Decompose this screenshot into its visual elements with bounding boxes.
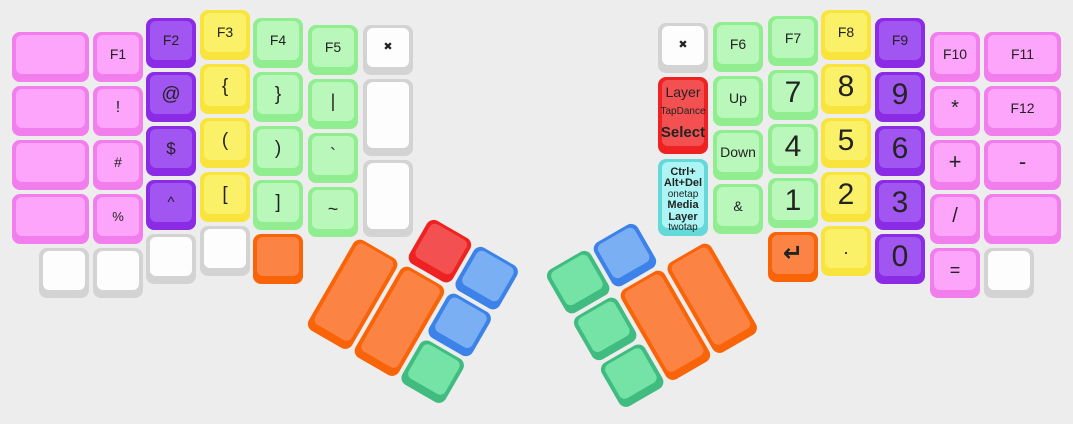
enter-icon: ↵ <box>783 242 803 267</box>
key-num-3[interactable]: 3 <box>875 180 925 230</box>
key-f10[interactable]: F10 <box>930 32 980 82</box>
keycap-face: 9 <box>879 75 921 114</box>
keycap-face: / <box>934 197 976 236</box>
keycap-face: = <box>934 251 976 290</box>
key-f5[interactable]: F5 <box>308 25 358 75</box>
key-label: + <box>949 151 962 174</box>
keycap-face: ) <box>257 129 299 168</box>
key-num-5[interactable]: 5 <box>821 118 871 168</box>
key-decimal-point[interactable]: . <box>821 226 871 276</box>
key-layer-tapdance-select[interactable]: LayerTapDanceSelect <box>658 77 708 154</box>
key-label: Up <box>729 91 747 106</box>
key-num-6[interactable]: 6 <box>875 126 925 176</box>
key-label: 7 <box>785 77 802 108</box>
key-f8[interactable]: F8 <box>821 10 871 60</box>
key-dollar[interactable]: $ <box>146 126 196 176</box>
key-blank[interactable] <box>12 194 89 244</box>
keycap-face: } <box>257 75 299 114</box>
key-blank[interactable] <box>146 234 196 284</box>
key-blank[interactable] <box>12 140 89 190</box>
key-slash[interactable]: / <box>930 194 980 244</box>
key-label-line: TapDance <box>660 107 705 117</box>
key-label: ] <box>275 193 280 213</box>
key-blank[interactable] <box>12 32 89 82</box>
key-label: & <box>733 199 742 214</box>
x-icon: ✖ <box>383 42 392 53</box>
key-num-7[interactable]: 7 <box>768 70 818 120</box>
keycap-face <box>97 251 139 290</box>
key-f4[interactable]: F4 <box>253 18 303 68</box>
key-num-8[interactable]: 8 <box>821 64 871 114</box>
keycap-face: ] <box>257 183 299 222</box>
key-f11[interactable]: F11 <box>984 32 1061 82</box>
key-f6[interactable]: F6 <box>713 22 763 72</box>
keycap-face: F4 <box>257 21 299 60</box>
key-left-paren[interactable]: ( <box>200 118 250 168</box>
key-down[interactable]: Down <box>713 130 763 180</box>
key-num-0[interactable]: 0 <box>875 234 925 284</box>
keycap-face: 7 <box>772 73 814 112</box>
key-label: # <box>114 155 122 170</box>
key-label: ! <box>116 100 120 117</box>
key-label: 5 <box>838 125 855 156</box>
key-minus[interactable]: - <box>984 140 1061 190</box>
keycap-face: F12 <box>988 89 1057 128</box>
key-left-bracket[interactable]: [ <box>200 172 250 222</box>
keycap-face: F7 <box>772 19 814 58</box>
keycap-face <box>16 89 85 128</box>
key-f12[interactable]: F12 <box>984 86 1061 136</box>
key-label: . <box>843 239 848 258</box>
keycap-face <box>603 346 659 401</box>
x-icon: ✖ <box>678 40 687 51</box>
keycap-face: LayerTapDanceSelect <box>662 80 704 146</box>
keycap-face <box>204 229 246 268</box>
key-blank[interactable] <box>253 234 303 284</box>
key-label: 2 <box>838 179 855 210</box>
keycap-face: Up <box>717 79 759 118</box>
keycap-face: & <box>717 187 759 226</box>
keycap-face <box>16 197 85 236</box>
key-right-bracket[interactable]: ] <box>253 180 303 230</box>
keycap-face: F11 <box>988 35 1057 74</box>
keycap-face <box>367 82 409 148</box>
key-num-2[interactable]: 2 <box>821 172 871 222</box>
keycap-face <box>596 226 652 281</box>
keycap-face: 4 <box>772 127 814 166</box>
key-num-9[interactable]: 9 <box>875 72 925 122</box>
key-label: ) <box>275 139 281 159</box>
keycap-face: 3 <box>879 183 921 222</box>
key-tilde[interactable]: ~ <box>308 187 358 237</box>
keycap-face: ~ <box>312 190 354 229</box>
keycap-face: 0 <box>879 237 921 276</box>
key-label: ^ <box>167 195 174 211</box>
key-label: F2 <box>163 33 179 48</box>
key-label: / <box>952 206 958 227</box>
keycap-face <box>576 299 632 354</box>
key-label: % <box>112 210 124 224</box>
keycap-face: F6 <box>717 25 759 64</box>
keycap-face: $ <box>150 129 192 168</box>
keycap-face: % <box>97 197 139 236</box>
key-exclamation[interactable]: ! <box>93 86 143 136</box>
key-label: 1 <box>785 185 802 216</box>
key-label: F5 <box>325 40 341 55</box>
keycap-face: F10 <box>934 35 976 74</box>
key-label: F7 <box>785 31 801 46</box>
key-blank[interactable] <box>39 248 89 298</box>
keymap-board: F1!#%F2@$^F3{([F4})]F5|`~✖ ✖LayerTapDanc… <box>0 0 1073 424</box>
key-none[interactable]: ✖ <box>363 25 413 75</box>
keycap-face <box>549 253 605 308</box>
key-label: 6 <box>892 133 909 164</box>
keycap-face: - <box>988 143 1057 182</box>
keycap-face <box>988 197 1057 236</box>
key-label: ` <box>330 146 336 165</box>
key-f2[interactable]: F2 <box>146 18 196 68</box>
key-blank[interactable] <box>984 248 1034 298</box>
key-at[interactable]: @ <box>146 72 196 122</box>
keycap-face <box>257 237 299 276</box>
key-pipe[interactable]: | <box>308 79 358 129</box>
key-label: F10 <box>943 47 967 62</box>
key-label: F12 <box>1010 101 1034 116</box>
keycap-face: [ <box>204 175 246 214</box>
key-label: ~ <box>328 200 339 219</box>
key-f7[interactable]: F7 <box>768 16 818 66</box>
key-f9[interactable]: F9 <box>875 18 925 68</box>
key-label: F9 <box>892 33 908 48</box>
key-label: 9 <box>892 79 909 110</box>
key-label: | <box>331 92 336 111</box>
keycap-face <box>150 237 192 276</box>
keycap-face: | <box>312 82 354 121</box>
key-blank[interactable] <box>984 194 1061 244</box>
key-none[interactable]: ✖ <box>658 23 708 73</box>
keycap-face: F1 <box>97 35 139 74</box>
keycap-face: ✖ <box>367 28 409 67</box>
key-enter[interactable]: ↵ <box>768 232 818 282</box>
key-label: @ <box>161 85 180 105</box>
key-label: = <box>950 261 961 280</box>
key-label: Down <box>720 145 756 160</box>
key-blank[interactable] <box>363 79 413 156</box>
keycap-face <box>16 35 85 74</box>
key-label: 8 <box>838 71 855 102</box>
key-label: F11 <box>1011 47 1034 62</box>
key-label-line: Layer <box>665 85 700 100</box>
keycap-face: * <box>934 89 976 128</box>
key-blank[interactable] <box>200 226 250 276</box>
key-label: 4 <box>785 131 802 162</box>
keycap-face <box>43 251 85 290</box>
key-right-paren[interactable]: ) <box>253 126 303 176</box>
key-blank[interactable] <box>12 86 89 136</box>
keycap-face: 8 <box>825 67 867 106</box>
keycap-face: ! <box>97 89 139 128</box>
key-label: F6 <box>730 37 746 52</box>
keycap-face: 2 <box>825 175 867 214</box>
key-backtick[interactable]: ` <box>308 133 358 183</box>
key-hash[interactable]: # <box>93 140 143 190</box>
keycap-face: 5 <box>825 121 867 160</box>
keycap-face: F8 <box>825 13 867 52</box>
keycap-face <box>460 249 516 304</box>
keycap-face: + <box>934 143 976 182</box>
keycap-face: F5 <box>312 28 354 67</box>
key-label: F1 <box>110 47 126 62</box>
key-num-1[interactable]: 1 <box>768 178 818 228</box>
key-f1[interactable]: F1 <box>93 32 143 82</box>
key-ampersand[interactable]: & <box>713 184 763 234</box>
keycap-face: Down <box>717 133 759 172</box>
key-label: 3 <box>892 187 909 218</box>
key-label: { <box>222 77 228 97</box>
key-label: F4 <box>270 33 286 48</box>
key-plus[interactable]: + <box>930 140 980 190</box>
key-caret[interactable]: ^ <box>146 180 196 230</box>
keycap-face: ↵ <box>772 235 814 274</box>
key-left-brace[interactable]: { <box>200 64 250 114</box>
key-up[interactable]: Up <box>713 76 763 126</box>
key-num-4[interactable]: 4 <box>768 124 818 174</box>
key-label: * <box>951 98 959 119</box>
keycap-face: # <box>97 143 139 182</box>
keycap-face: 6 <box>879 129 921 168</box>
key-label: F3 <box>217 25 233 40</box>
key-label: [ <box>222 185 227 205</box>
key-equals[interactable]: = <box>930 248 980 298</box>
keycap-face <box>16 143 85 182</box>
key-asterisk[interactable]: * <box>930 86 980 136</box>
keycap-face: @ <box>150 75 192 114</box>
keycap-face: ` <box>312 136 354 175</box>
keycap-face: ( <box>204 121 246 160</box>
key-blank[interactable] <box>93 248 143 298</box>
keycap-face <box>413 222 469 277</box>
keycap-face: F3 <box>204 13 246 52</box>
keycap-face: . <box>825 229 867 268</box>
key-label: F8 <box>838 25 854 40</box>
keycap-face: ^ <box>150 183 192 222</box>
key-right-brace[interactable]: } <box>253 72 303 122</box>
key-f3[interactable]: F3 <box>200 10 250 60</box>
key-label-line: Select <box>661 125 705 141</box>
keycap-face: 1 <box>772 181 814 220</box>
keycap-face: ✖ <box>662 26 704 65</box>
key-label: ( <box>222 131 228 151</box>
key-label: 0 <box>892 241 909 272</box>
key-label: } <box>275 85 281 105</box>
key-label: $ <box>166 140 175 158</box>
keycap-face: F2 <box>150 21 192 60</box>
key-percent[interactable]: % <box>93 194 143 244</box>
keycap-face: F9 <box>879 21 921 60</box>
keycap-face: { <box>204 67 246 106</box>
keycap-face <box>988 251 1030 290</box>
key-label: - <box>1019 151 1026 174</box>
